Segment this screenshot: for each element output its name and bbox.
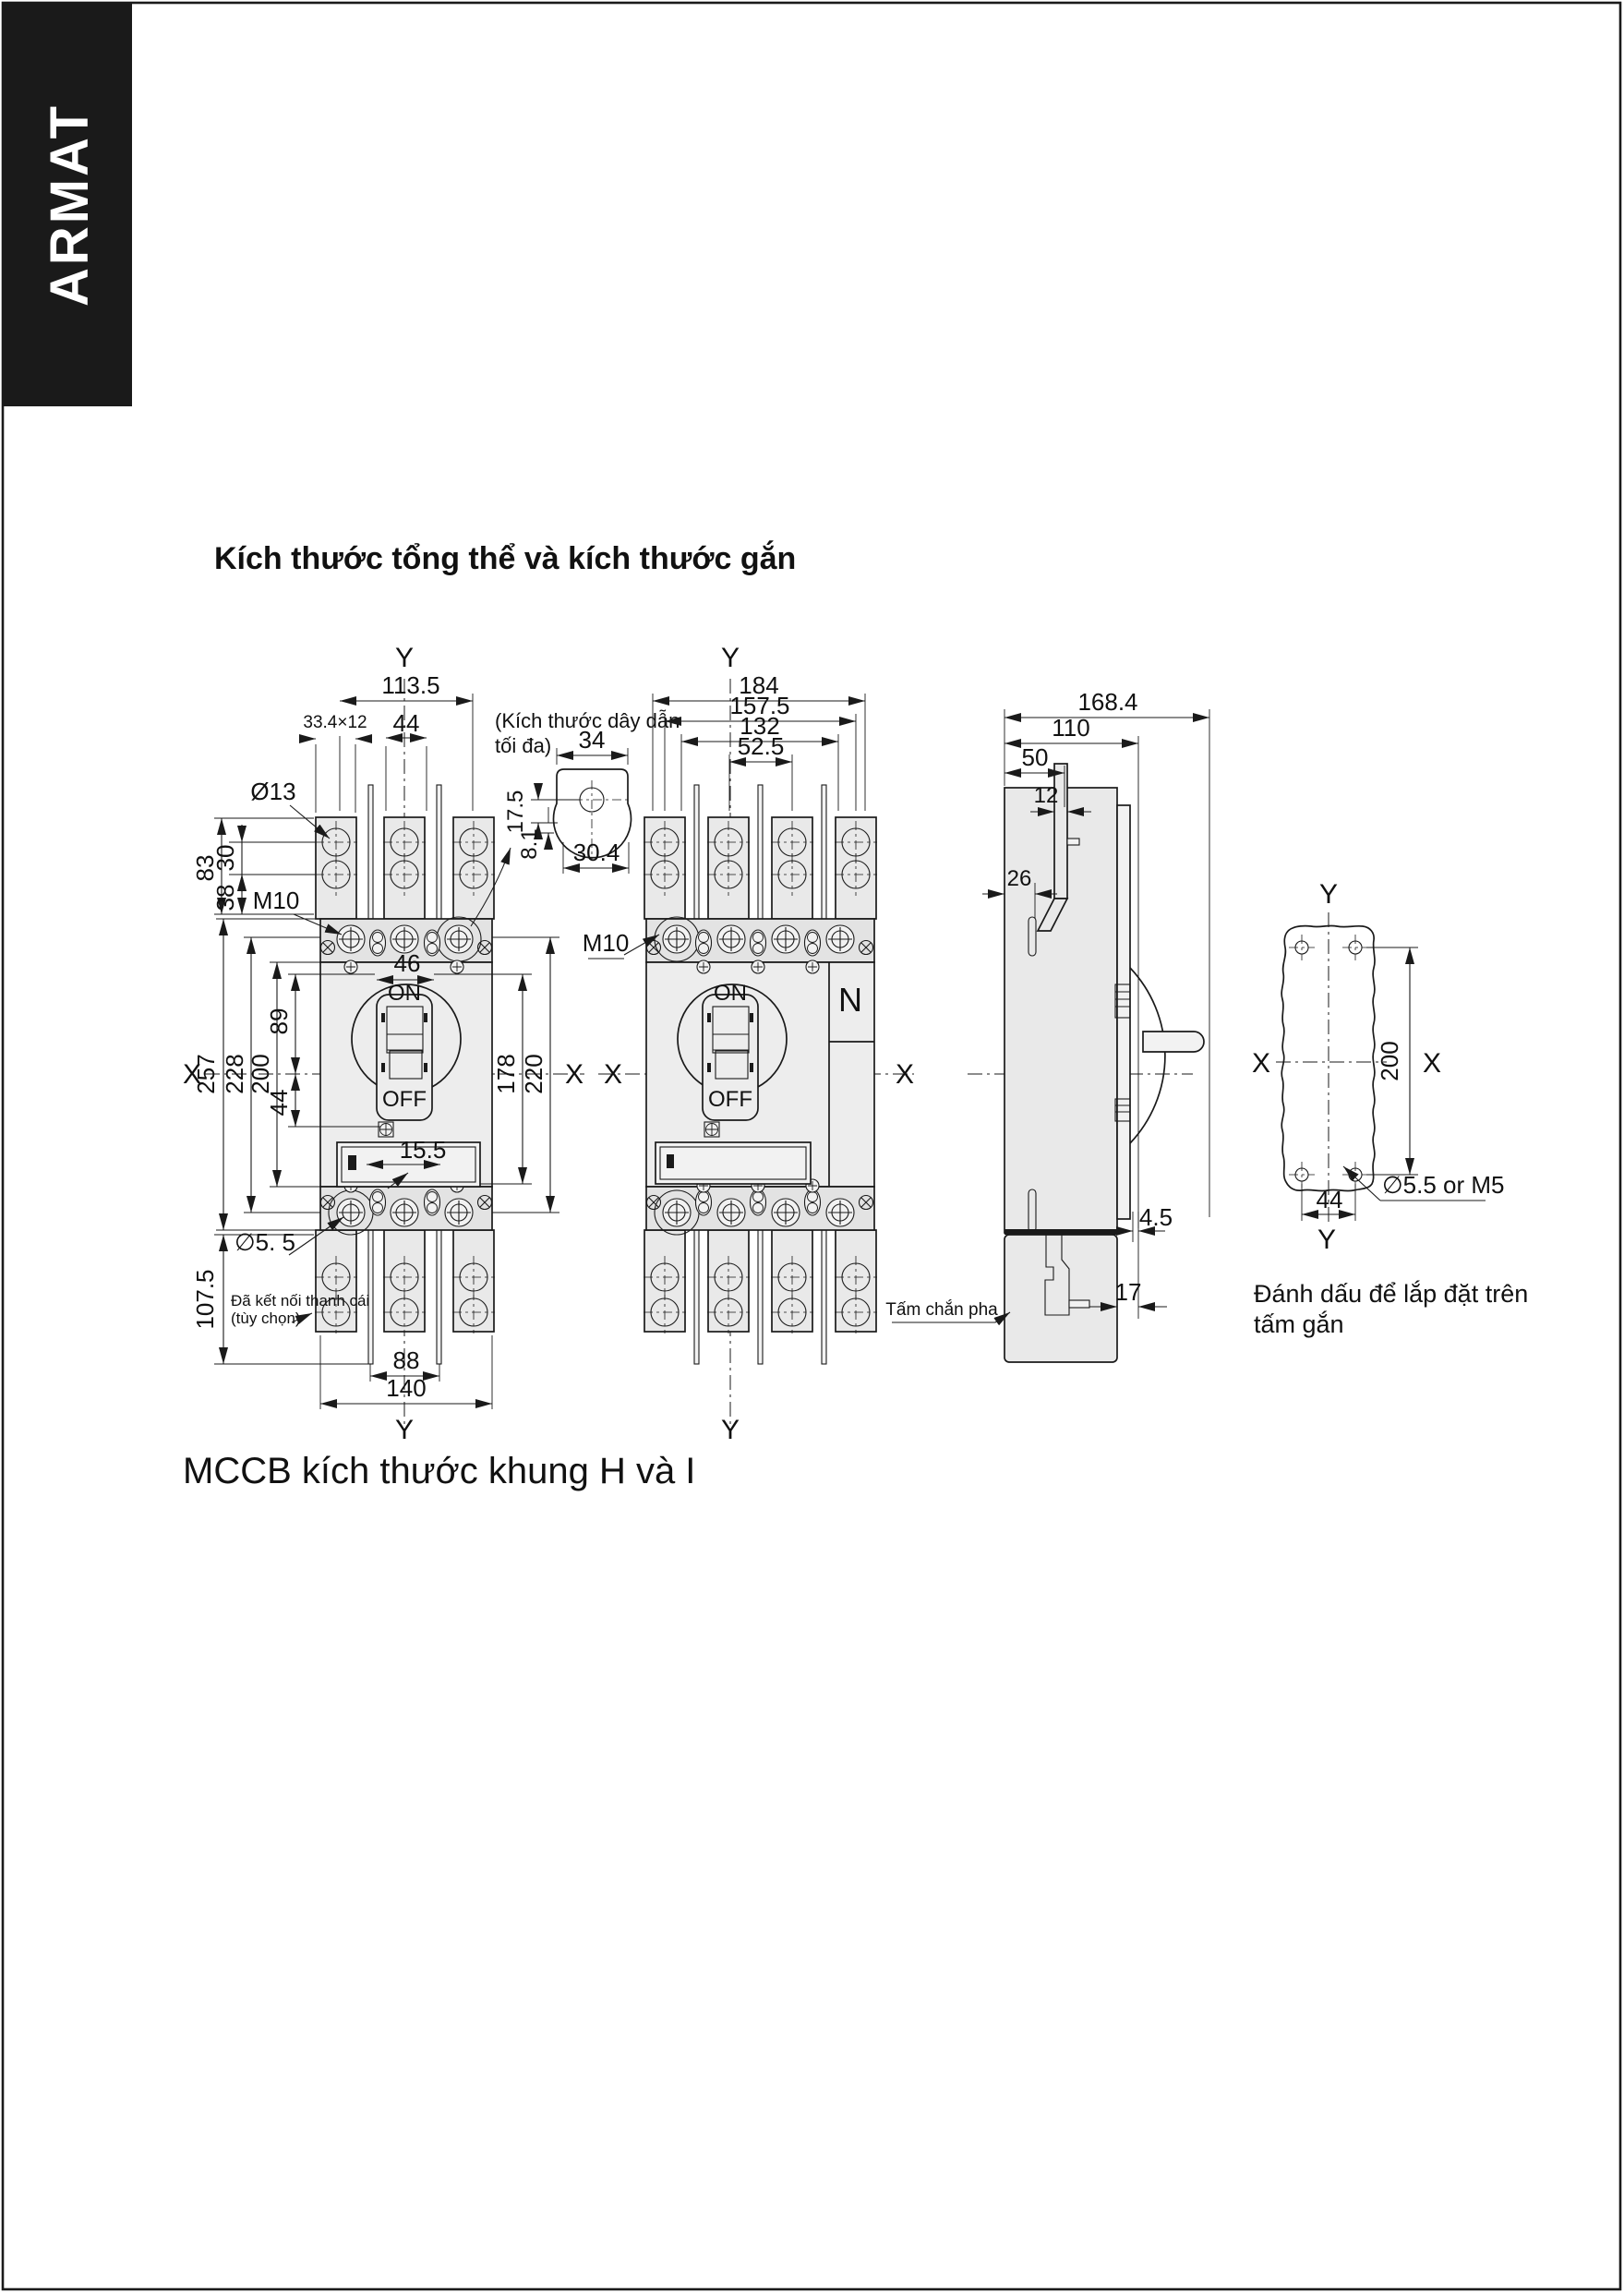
axis-y-top-4p: Y [721, 643, 740, 673]
dim-140: 140 [386, 1374, 426, 1402]
dim-46: 46 [394, 949, 421, 977]
dim-plate-44: 44 [1317, 1186, 1343, 1213]
neutral-pole-label: N [838, 981, 862, 1019]
dim-200: 200 [247, 1054, 274, 1093]
axis-x-left-plate: X [1252, 1048, 1270, 1079]
dim-110: 110 [1052, 714, 1089, 742]
dim-34: 34 [579, 726, 606, 754]
phase-barrier-label: Tấm chắn pha [885, 1299, 998, 1320]
side-view: 168.4 110 50 12 26 4.5 17 Tấm chắn pha [885, 688, 1209, 1362]
note-busbar-line1: Đã kết nối thanh cái [231, 1292, 369, 1309]
axis-y-bottom-3p: Y [395, 1415, 414, 1445]
axis-x-right-3p: X [565, 1059, 583, 1090]
switch-on-label-4p: ON [714, 981, 747, 1006]
axis-x-right-4p: X [896, 1059, 914, 1090]
dim-168-4: 168.4 [1077, 688, 1137, 716]
switch-off-label: OFF [382, 1087, 427, 1112]
page-title: Kích thước tổng thể và kích thước gắn [214, 541, 796, 576]
front-view-3pole: ON OFF 15.5 Y Y X X 113.5 44 33.4×12 Ø13… [183, 643, 584, 1445]
axis-x-left-4p: X [604, 1059, 622, 1090]
dim-257: 257 [192, 1054, 220, 1093]
switch-on-label: ON [388, 981, 421, 1006]
switch-off-label-4p: OFF [708, 1087, 752, 1112]
dim-17: 17 [1115, 1278, 1142, 1306]
dim-220: 220 [520, 1054, 547, 1093]
dim-44-pitch: 44 [393, 709, 420, 737]
note-wire-line2: tối đa) [495, 734, 551, 757]
dim-30-4: 30.4 [573, 839, 620, 866]
dim-33-4x12: 33.4×12 [303, 713, 367, 732]
plate-caption-line2: tấm gắn [1254, 1309, 1344, 1338]
dim-89: 89 [265, 1008, 293, 1035]
dim-50: 50 [1022, 743, 1049, 771]
dim-107-5: 107.5 [191, 1269, 219, 1329]
dim-30: 30 [211, 845, 239, 872]
thread-label-4p: M10 [583, 929, 630, 957]
brand-text: ARMAT [40, 103, 100, 307]
dim-26: 26 [1007, 866, 1032, 891]
front-view-4pole: N ON OFF Y Y X X 184 157.5 132 52.5 M10 [583, 643, 914, 1445]
axis-y-bottom-4p: Y [721, 1415, 740, 1445]
toggle-lever-side [1143, 1032, 1204, 1052]
dim-lug-hole: Ø13 [250, 778, 295, 805]
dim-plate-200: 200 [1376, 1041, 1403, 1080]
dim-15-5: 15.5 [400, 1136, 447, 1164]
axis-y-top-plate: Y [1319, 879, 1338, 910]
dim-88: 88 [393, 1346, 420, 1374]
datasheet-page: ARMAT Kích thước tổng thể và kích thước … [0, 0, 1624, 2293]
dim-8-1: 8.1 [517, 828, 542, 859]
dim-52-5: 52.5 [738, 732, 785, 760]
dim-113-5: 113.5 [381, 671, 439, 699]
dim-228: 228 [221, 1054, 248, 1093]
thread-label-3p: M10 [253, 887, 300, 914]
dim-44-handle: 44 [265, 1090, 293, 1116]
note-busbar-line2: (tùy chọn) [231, 1309, 301, 1327]
dim-4-5: 4.5 [1139, 1203, 1173, 1231]
brand-logo: ARMAT [3, 3, 132, 406]
dim-178: 178 [492, 1054, 520, 1093]
axis-y-top-3p: Y [395, 643, 414, 673]
figure-caption: MCCB kích thước khung H và I [183, 1451, 695, 1491]
axis-x-right-plate: X [1423, 1048, 1441, 1079]
mccb-dimension-drawing: ARMAT Kích thước tổng thể và kích thước … [0, 0, 1624, 2293]
plate-caption-line1: Đánh dấu để lắp đặt trên [1254, 1279, 1528, 1308]
dim-17-5: 17.5 [503, 790, 528, 834]
mounting-plate-view: Y Y X X 200 44 ∅5.5 or M5 Đánh dấu để lắ… [1252, 879, 1528, 1338]
axis-y-bottom-plate: Y [1317, 1225, 1336, 1255]
dim-mount-hole: ∅5. 5 [235, 1228, 295, 1256]
dim-38: 38 [211, 885, 239, 911]
plate-hole-label: ∅5.5 or M5 [1382, 1171, 1504, 1199]
dim-12: 12 [1034, 783, 1059, 808]
